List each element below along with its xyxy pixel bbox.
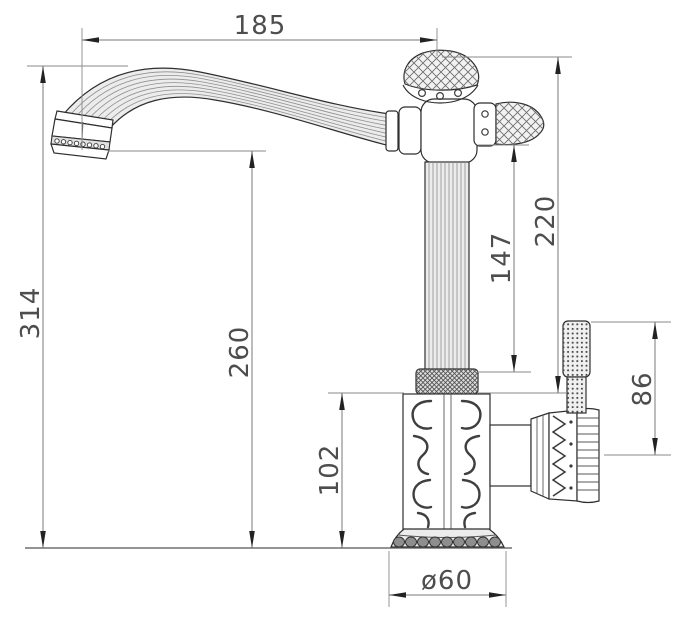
dim-label-220: 220 <box>531 195 561 248</box>
dimension-spout-outlet-height: 260 <box>108 151 266 548</box>
dim-label-diameter-60: ø60 <box>421 566 473 596</box>
finial-collar-scrolls <box>419 90 462 100</box>
drawing-sheet: 185 314 260 220 147 102 <box>0 0 684 620</box>
base-body <box>403 394 490 546</box>
knurled-collar <box>416 369 478 394</box>
faucet-technical-drawing: 185 314 260 220 147 102 <box>0 0 684 620</box>
valve-knob <box>577 409 599 503</box>
valve-stem-handle <box>563 321 590 413</box>
dim-label-260: 260 <box>225 326 255 379</box>
flange-beads <box>394 537 501 547</box>
dim-label-102: 102 <box>315 444 345 497</box>
dim-label-86: 86 <box>628 371 658 406</box>
dimension-column-height: 147 <box>477 145 531 372</box>
dimension-base-diameter: ø60 <box>389 551 506 607</box>
faucet-drawing <box>25 50 599 548</box>
top-finial <box>403 50 479 103</box>
base-flange <box>391 529 504 547</box>
side-valve-assembly <box>490 321 599 503</box>
dim-label-314: 314 <box>16 287 46 340</box>
dimension-base-height: 102 <box>315 393 404 548</box>
dim-label-185: 185 <box>234 11 287 41</box>
dimension-handle-height: 86 <box>591 322 671 455</box>
side-pinecone-handle <box>474 102 544 146</box>
faucet-head-body <box>421 99 477 163</box>
dim-label-147: 147 <box>487 232 517 285</box>
spout-connector-rings <box>386 107 421 154</box>
fluted-column <box>425 162 469 370</box>
valve-crown-ornament <box>549 410 577 501</box>
